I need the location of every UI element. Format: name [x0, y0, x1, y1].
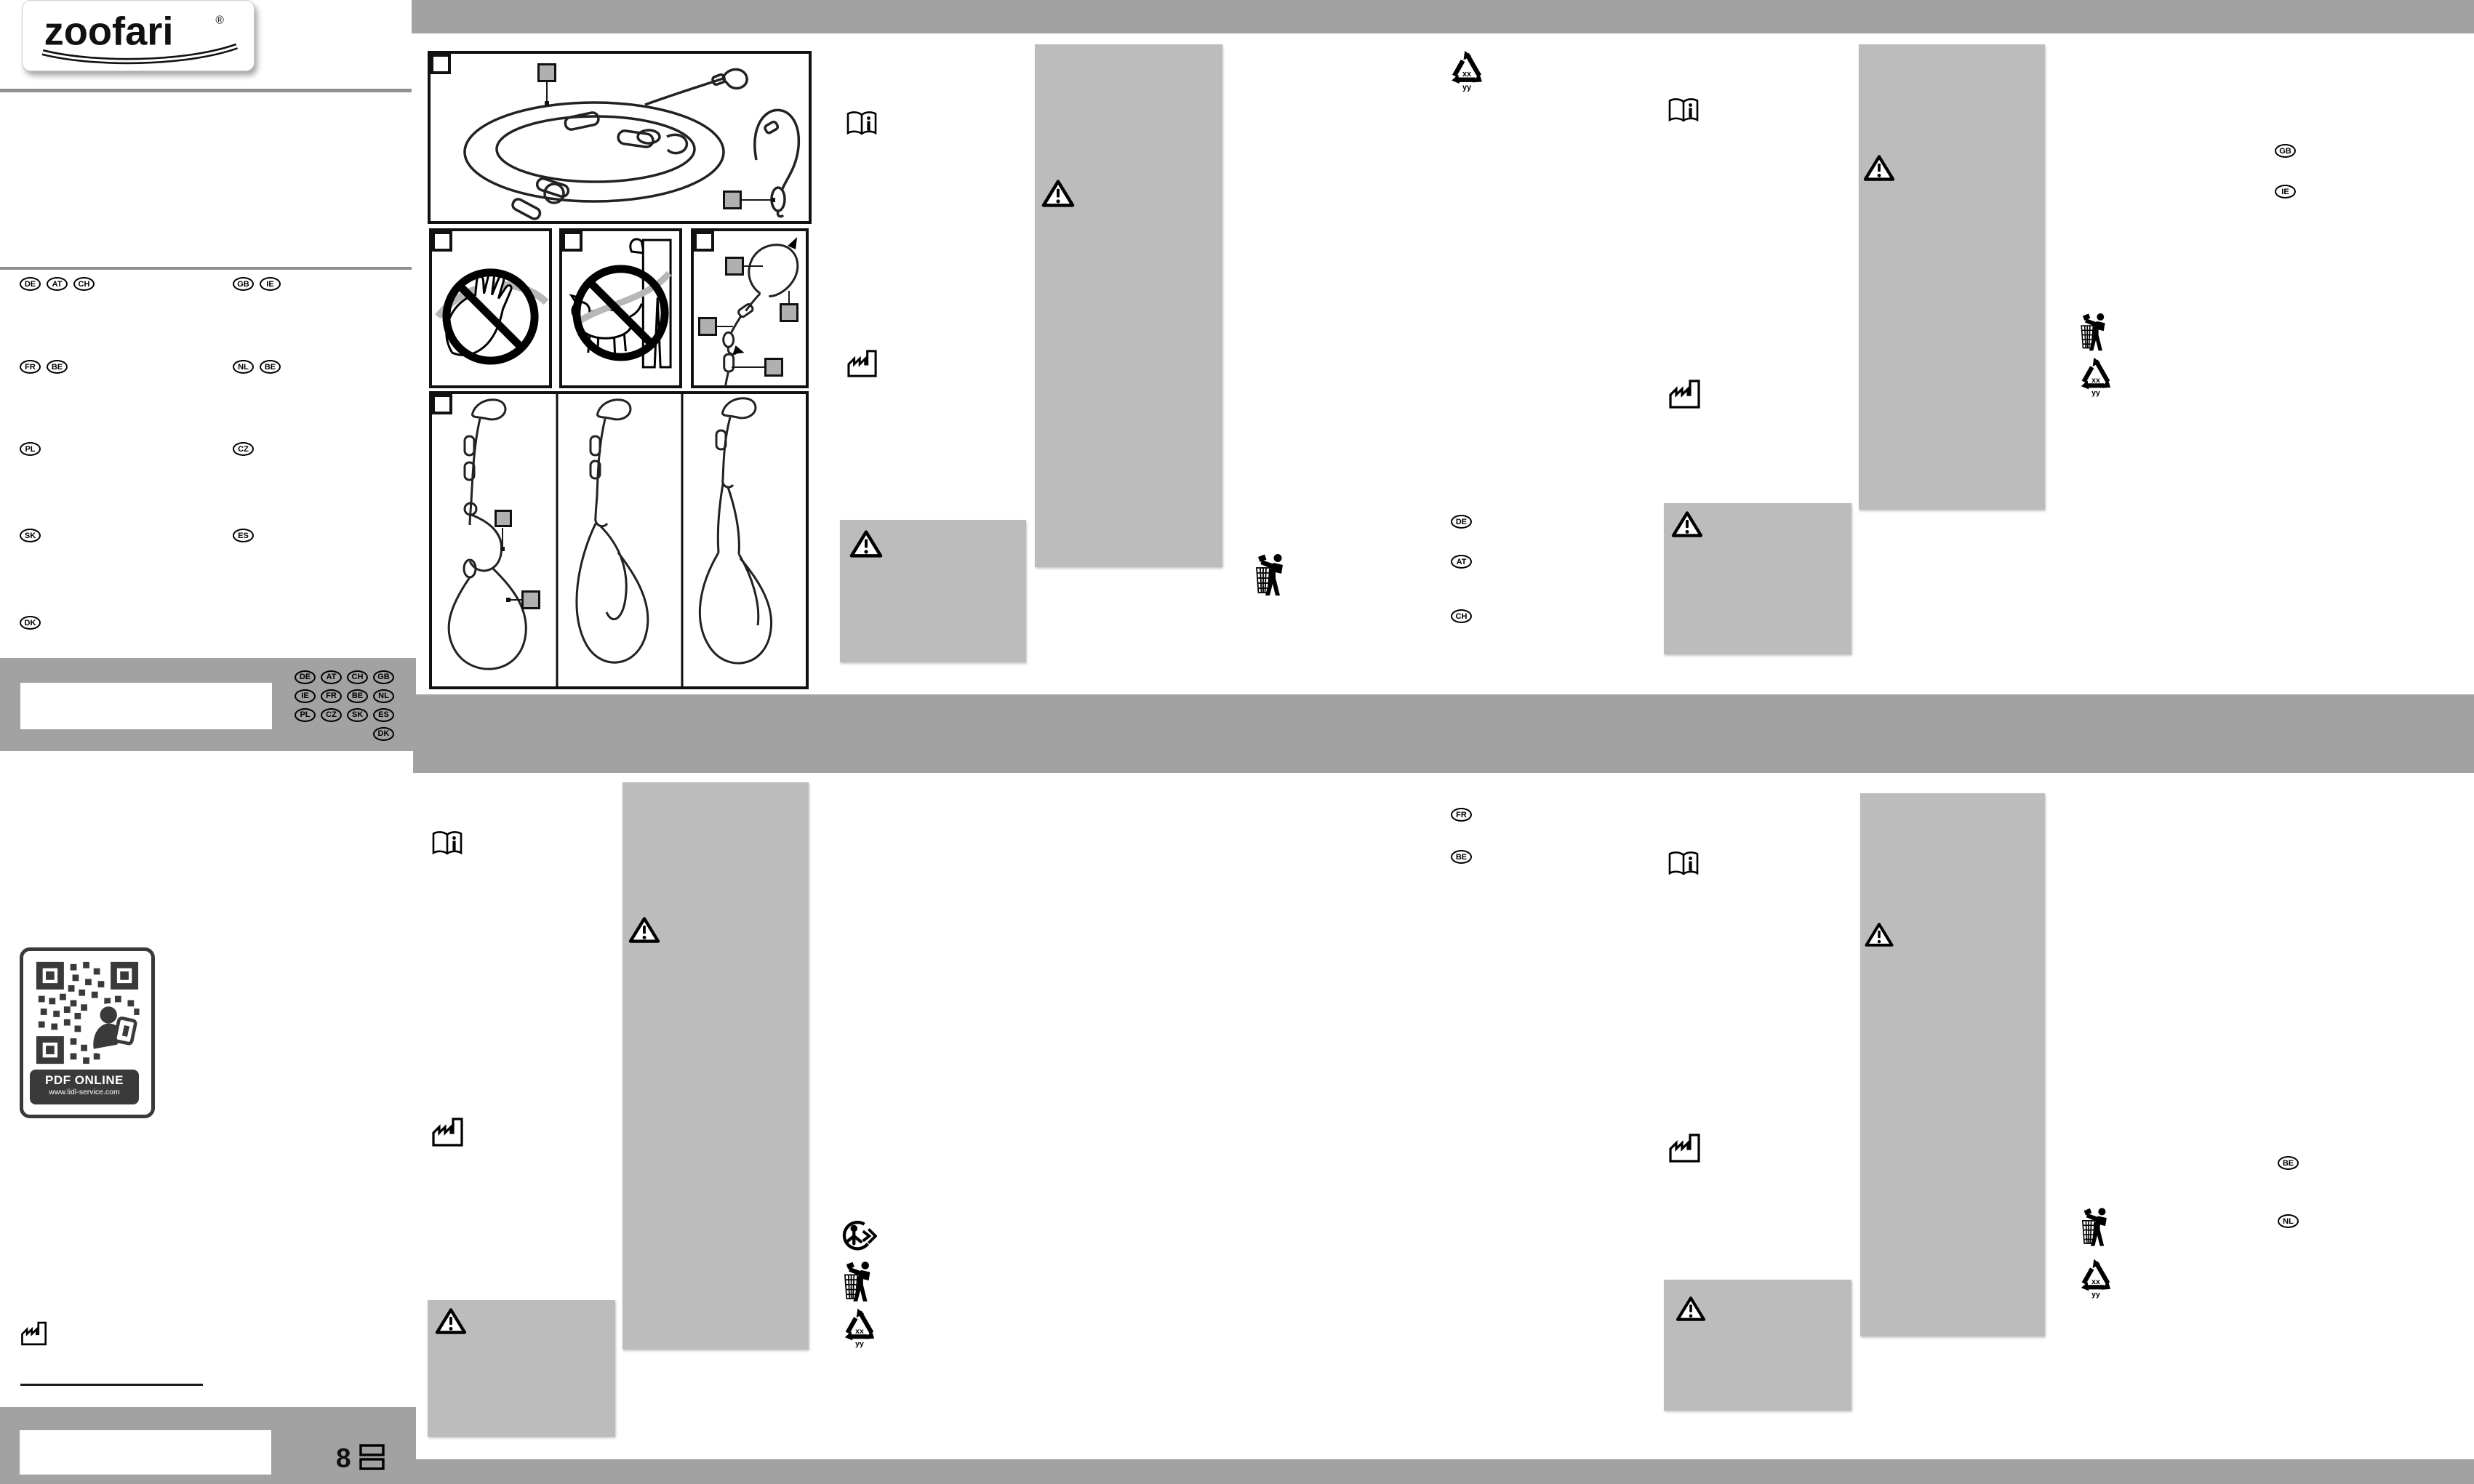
figure-d-leader-3 — [717, 326, 733, 327]
country-badge-pl: PL — [295, 708, 316, 722]
language-row-dk: DK — [20, 616, 41, 630]
warning-triangle-icon — [1041, 179, 1075, 208]
logo-text: zoofari — [44, 10, 174, 54]
manual-page: xx yy — [0, 0, 2474, 1484]
country-badge-es: ES — [233, 529, 254, 542]
leader-dot — [545, 101, 549, 105]
warning-triangle-icon — [435, 1307, 467, 1335]
country-badge-gb: GB — [233, 277, 254, 291]
warning-triangle-icon — [849, 529, 883, 558]
country-badge-nl: NL — [373, 689, 394, 703]
qr-code-card: PDF ONLINE www.lidl-service.com — [20, 947, 155, 1118]
country-badge-de: DE — [1451, 515, 1472, 529]
manufacturer-icon — [431, 1117, 465, 1147]
figure-e-callout-1 — [495, 510, 512, 527]
leash-configurations-illustration — [432, 394, 806, 686]
consult-instructions-icon — [431, 830, 463, 857]
figure-d-leader-1 — [744, 265, 763, 267]
tidy-man-icon — [844, 1261, 877, 1303]
language-row-fr-be: FRBE — [20, 360, 68, 374]
tidy-man-icon — [1255, 553, 1290, 597]
consult-instructions-icon — [1668, 851, 1700, 877]
country-badge-be: BE — [47, 360, 68, 374]
figure-a-callout-1 — [537, 63, 556, 82]
tidy-man-icon — [2080, 313, 2112, 352]
figure-e-box — [429, 391, 809, 689]
manufacturer-icon — [20, 1319, 48, 1348]
country-badge-ie: IE — [2275, 185, 2296, 198]
recycling-symbol-icon — [1449, 49, 1485, 92]
registered-mark: ® — [215, 14, 224, 26]
country-badge-fr: FR — [20, 360, 41, 374]
safety-panel-nl — [1860, 793, 2045, 1336]
page-number: 8 — [336, 1443, 351, 1474]
divider-rule-languages — [0, 267, 412, 270]
warning-triangle-icon — [1676, 1296, 1706, 1322]
figure-a-leader-2 — [742, 199, 774, 201]
figure-d-leader-4 — [732, 366, 764, 368]
country-badge-gb: GB — [2275, 144, 2296, 158]
qr-url: www.lidl-service.com — [30, 1087, 139, 1097]
language-row-de-at-ch: DEATCH — [20, 277, 95, 291]
figure-c-box — [559, 228, 682, 388]
warning-triangle-icon — [628, 916, 660, 944]
figure-e-callout-2 — [521, 590, 540, 609]
country-badge-es: ES — [373, 708, 394, 722]
warning-triangle-icon — [1863, 154, 1895, 182]
figure-c-label — [562, 231, 583, 252]
country-badge-sk: SK — [20, 529, 41, 542]
country-badge-dk: DK — [20, 616, 41, 630]
leader-dot — [771, 198, 775, 202]
triman-icon — [839, 1220, 877, 1252]
figure-d-callout-2 — [780, 303, 798, 322]
figure-d-callout-3 — [698, 317, 717, 336]
country-badge-de: DE — [295, 670, 316, 684]
qr-title: PDF ONLINE — [30, 1074, 139, 1087]
warning-triangle-icon — [1671, 510, 1703, 538]
country-badge-dk: DK — [373, 727, 394, 741]
figure-d-callout-1 — [725, 257, 744, 276]
footer-model-box — [20, 1430, 271, 1475]
warning-triangle-icon — [1865, 922, 1894, 947]
footer-rule — [20, 1384, 203, 1386]
model-number-box — [20, 683, 272, 729]
figure-a-box — [428, 51, 812, 224]
leash-and-collar-illustration — [431, 54, 809, 221]
recycling-symbol-icon — [2078, 1258, 2113, 1299]
zoofari-logo: zoofari ® — [22, 0, 255, 71]
qr-label: PDF ONLINE www.lidl-service.com — [30, 1070, 139, 1104]
figure-e-leader-2 — [509, 599, 521, 601]
safety-panel-gb — [1859, 44, 2045, 510]
figure-d-leader-2 — [788, 291, 790, 303]
recycling-symbol-icon — [2078, 356, 2113, 397]
recycling-symbol-icon — [842, 1307, 877, 1348]
top-strip — [412, 0, 2474, 33]
country-badge-nl: NL — [2278, 1214, 2299, 1228]
country-badge-ch: CH — [73, 277, 95, 291]
figure-a-label — [431, 54, 451, 74]
country-badge-sk: SK — [347, 708, 368, 722]
country-badge-at: AT — [1451, 555, 1472, 569]
country-badge-ie: IE — [260, 277, 281, 291]
country-badge-be: BE — [1451, 850, 1472, 864]
section-title-band — [413, 694, 2474, 773]
language-row-pl: PL — [20, 442, 41, 456]
figure-d-label — [694, 231, 714, 252]
country-badge-ch: CH — [347, 670, 368, 684]
manufacturer-icon — [846, 349, 878, 378]
safety-panel-de — [1035, 44, 1222, 567]
country-badge-at: AT — [321, 670, 342, 684]
country-badge-fr: FR — [1451, 808, 1472, 822]
figure-a-callout-2 — [723, 190, 742, 209]
language-row-sk: SK — [20, 529, 41, 542]
country-badge-at: AT — [47, 277, 68, 291]
country-badge-de: DE — [20, 277, 41, 291]
country-badge-pl: PL — [20, 442, 41, 456]
consult-instructions-icon — [1668, 97, 1700, 124]
figure-a-leader-1 — [546, 82, 548, 103]
manufacturer-icon — [1668, 1133, 1702, 1163]
language-row-gb-ie: GBIE — [233, 277, 281, 291]
country-badge-nl: NL — [233, 360, 254, 374]
figure-d-callout-4 — [764, 358, 783, 377]
country-badge-be: BE — [347, 689, 368, 703]
prohibition-leg-wrap-illustration — [562, 231, 679, 385]
tidy-man-icon — [2081, 1207, 2113, 1248]
manufacturer-icon — [1668, 379, 1702, 409]
safety-panel-fr — [622, 782, 809, 1349]
pages-icon — [359, 1443, 385, 1472]
language-row-cz: CZ — [233, 442, 254, 456]
divider-rule-top — [0, 89, 412, 92]
consult-instructions-icon — [846, 111, 878, 137]
country-badge-cz: CZ — [233, 442, 254, 456]
country-badge-be: BE — [260, 360, 281, 374]
country-badge-fr: FR — [321, 689, 342, 703]
country-badge-grid: DEATCHGBIEFRBENLPLCZSKESDK — [295, 667, 399, 743]
country-badge-ie: IE — [295, 689, 316, 703]
figure-b-box — [429, 228, 552, 388]
figure-e-label — [432, 394, 452, 414]
leader-dot — [506, 598, 511, 602]
qr-code — [33, 960, 141, 1066]
country-badge-cz: CZ — [321, 708, 342, 722]
language-row-es: ES — [233, 529, 254, 542]
leader-dot — [500, 547, 505, 551]
prohibition-hand-wrap-illustration — [432, 231, 549, 385]
country-badge-be: BE — [2278, 1156, 2299, 1170]
country-badge-ch: CH — [1451, 609, 1472, 623]
figure-b-label — [432, 231, 452, 252]
footer-strip — [416, 1459, 2474, 1484]
language-row-nl-be: NLBE — [233, 360, 281, 374]
country-badge-gb: GB — [373, 670, 394, 684]
